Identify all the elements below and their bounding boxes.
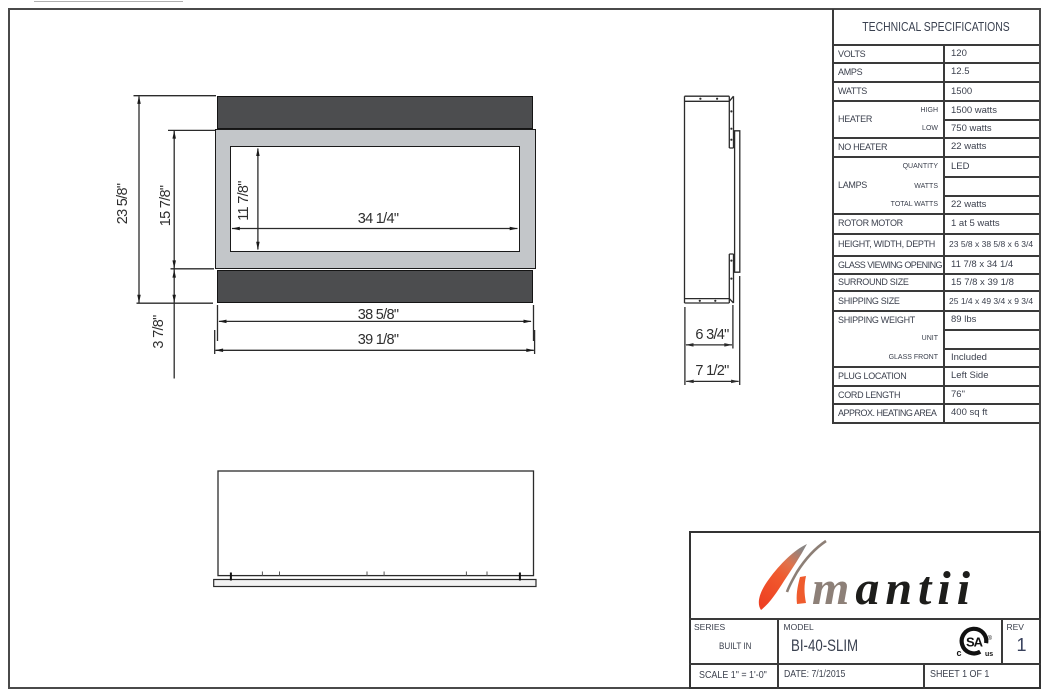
svg-text:SA: SA	[966, 634, 984, 649]
svg-text:us: us	[985, 651, 993, 658]
svg-text:®: ®	[987, 635, 992, 642]
svg-text:c: c	[956, 648, 961, 658]
svg-text:mantii: mantii	[812, 562, 976, 615]
